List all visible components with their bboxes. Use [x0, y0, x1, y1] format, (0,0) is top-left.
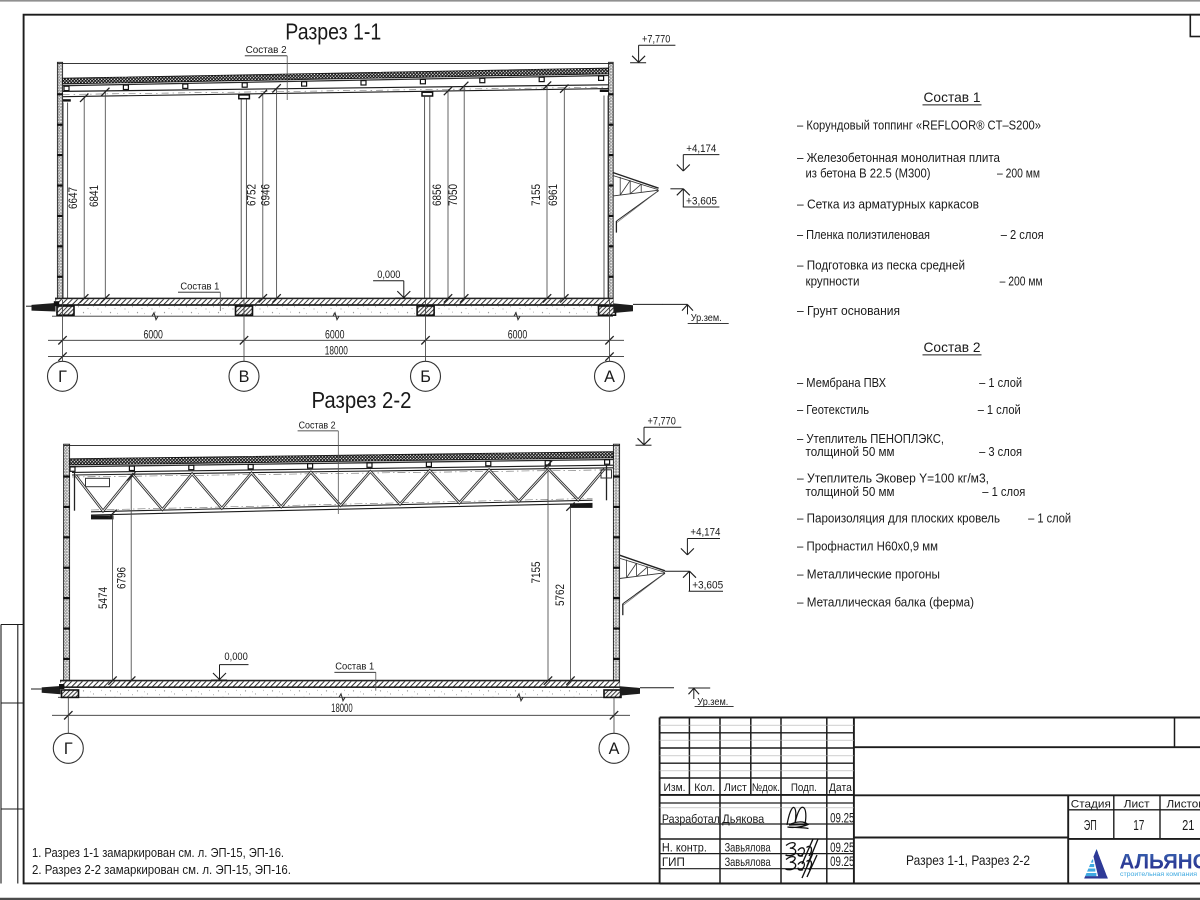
svg-text:крупности: крупности — [806, 275, 860, 289]
svg-text:Состав 2: Состав 2 — [246, 45, 287, 56]
svg-text:09.25: 09.25 — [830, 810, 854, 826]
svg-text:– 3 слоя: – 3 слоя — [979, 445, 1022, 459]
svg-text:+4,174: +4,174 — [686, 143, 716, 155]
svg-text:– Пароизоляция для плоских кро: – Пароизоляция для плоских кровель — [797, 512, 1000, 526]
svg-text:+3,605: +3,605 — [686, 195, 717, 207]
svg-text:А: А — [604, 368, 615, 386]
svg-text:толщиной 50 мм: толщиной 50 мм — [806, 485, 895, 499]
svg-text:+7,770: +7,770 — [648, 415, 676, 427]
svg-text:21: 21 — [1182, 817, 1194, 834]
svg-text:– Грунт основания: – Грунт основания — [797, 304, 900, 318]
svg-text:Лист: Лист — [724, 782, 747, 794]
svg-text:7050: 7050 — [448, 184, 460, 206]
svg-text:Б: Б — [420, 368, 431, 386]
svg-text:0,000: 0,000 — [224, 651, 247, 663]
svg-text:+3,605: +3,605 — [692, 580, 723, 592]
svg-text:+7,770: +7,770 — [642, 33, 670, 45]
svg-text:7155: 7155 — [531, 562, 543, 584]
svg-text:– Мембрана ПВХ: – Мембрана ПВХ — [797, 376, 887, 390]
svg-text:Г: Г — [64, 740, 73, 758]
svg-text:Изм.: Изм. — [664, 782, 686, 794]
svg-text:Лист: Лист — [1124, 799, 1151, 811]
svg-text:Состав 1: Состав 1 — [180, 281, 219, 292]
svg-text:– Металлическая балка (ферма): – Металлическая балка (ферма) — [797, 596, 974, 610]
svg-text:Состав 2: Состав 2 — [924, 339, 981, 355]
svg-text:Дата: Дата — [829, 782, 853, 794]
svg-text:А: А — [609, 740, 620, 758]
svg-text:Дьякова: Дьякова — [722, 812, 764, 826]
svg-text:0,000: 0,000 — [377, 269, 400, 281]
svg-text:– 200 мм: – 200 мм — [997, 167, 1040, 181]
svg-text:6946: 6946 — [260, 184, 272, 206]
svg-text:Г: Г — [58, 368, 67, 386]
svg-text:– Профнастил Н60х0,9 мм: – Профнастил Н60х0,9 мм — [797, 540, 938, 554]
svg-text:6000: 6000 — [508, 327, 528, 341]
svg-text:18000: 18000 — [325, 344, 348, 358]
svg-text:– Геотекстиль: – Геотекстиль — [797, 403, 869, 417]
svg-text:Подп.: Подп. — [791, 782, 817, 794]
svg-text:толщиной 50 мм: толщиной 50 мм — [806, 445, 895, 459]
svg-text:– 200 мм: – 200 мм — [1000, 275, 1043, 289]
svg-text:6000: 6000 — [143, 327, 163, 341]
svg-text:Ур.зем.: Ур.зем. — [691, 313, 722, 324]
svg-text:Состав 1: Состав 1 — [335, 661, 374, 672]
svg-text:6752: 6752 — [247, 184, 259, 206]
svg-text:– Железобетонная монолитная п: – Железобетонная монолитная плита — [797, 151, 1000, 165]
svg-text:6961: 6961 — [548, 184, 560, 206]
svg-text:Разрез 1-1, Разрез 2-2: Разрез 1-1, Разрез 2-2 — [906, 853, 1030, 868]
svg-text:ЭП: ЭП — [1084, 817, 1097, 834]
svg-text:Разрез 2-2: Разрез 2-2 — [312, 387, 412, 413]
svg-text:5762: 5762 — [555, 584, 567, 606]
svg-text:6647: 6647 — [68, 187, 80, 209]
svg-text:– Подготовка из песка средней: – Подготовка из песка средней — [797, 259, 965, 273]
svg-text:– 1 слой: – 1 слой — [978, 403, 1021, 417]
svg-text:– 1 слоя: – 1 слоя — [982, 485, 1025, 499]
svg-text:строительная компания: строительная компания — [1120, 871, 1197, 878]
svg-text:– Металлические прогоны: – Металлические прогоны — [797, 568, 940, 582]
svg-text:Разработал: Разработал — [662, 812, 720, 826]
svg-text:Завьялова: Завьялова — [725, 855, 771, 869]
svg-text:2. Разрез 2-2 замаркирован см.: 2. Разрез 2-2 замаркирован см. л. ЭП-15,… — [32, 863, 291, 877]
svg-text:6000: 6000 — [325, 327, 345, 341]
svg-text:АЛЬЯНС: АЛЬЯНС — [1120, 850, 1200, 874]
svg-text:7155: 7155 — [531, 184, 543, 206]
svg-text:+4,174: +4,174 — [690, 527, 720, 539]
svg-text:Кол.: Кол. — [694, 782, 715, 794]
svg-text:5474: 5474 — [98, 586, 110, 609]
svg-text:1. Разрез 1-1 замаркирован см.: 1. Разрез 1-1 замаркирован см. л. ЭП-15,… — [32, 846, 284, 860]
svg-text:Листов: Листов — [1167, 799, 1200, 811]
svg-text:18000: 18000 — [331, 701, 353, 715]
svg-text:6856: 6856 — [432, 184, 444, 206]
svg-text:Разрез 1-1: Разрез 1-1 — [285, 18, 381, 44]
svg-text:ГИП: ГИП — [662, 855, 685, 869]
svg-text:из бетона В 22.5 (М300): из бетона В 22.5 (М300) — [806, 167, 931, 181]
svg-text:– Пленка полиэтиленовая: – Пленка полиэтиленовая — [797, 228, 930, 242]
svg-text:– 2 слоя: – 2 слоя — [1001, 228, 1044, 242]
svg-text:6796: 6796 — [117, 567, 129, 589]
svg-text:Н. контр.: Н. контр. — [662, 841, 707, 855]
svg-text:Состав 2: Состав 2 — [299, 420, 336, 431]
svg-text:В: В — [239, 368, 250, 386]
svg-text:Завьялова: Завьялова — [725, 841, 771, 855]
svg-text:– Корундовый топпинг «REFLOOR®: – Корундовый топпинг «REFLOOR® CT–S200» — [797, 119, 1041, 133]
svg-text:№док.: №док. — [752, 782, 780, 794]
svg-text:17: 17 — [1133, 817, 1144, 834]
svg-text:09.25: 09.25 — [830, 853, 854, 869]
svg-text:– Утеплитель Эковер Y=100 кг/м: – Утеплитель Эковер Y=100 кг/м3, — [797, 472, 989, 486]
svg-text:– 1 слой: – 1 слой — [1028, 512, 1071, 526]
svg-text:Состав 1: Состав 1 — [924, 89, 981, 105]
svg-text:6841: 6841 — [89, 185, 101, 207]
svg-text:– Сетка из арматурных каркасов: – Сетка из арматурных каркасов — [797, 198, 979, 212]
svg-text:Стадия: Стадия — [1071, 799, 1111, 811]
svg-text:– 1 слой: – 1 слой — [979, 376, 1022, 390]
